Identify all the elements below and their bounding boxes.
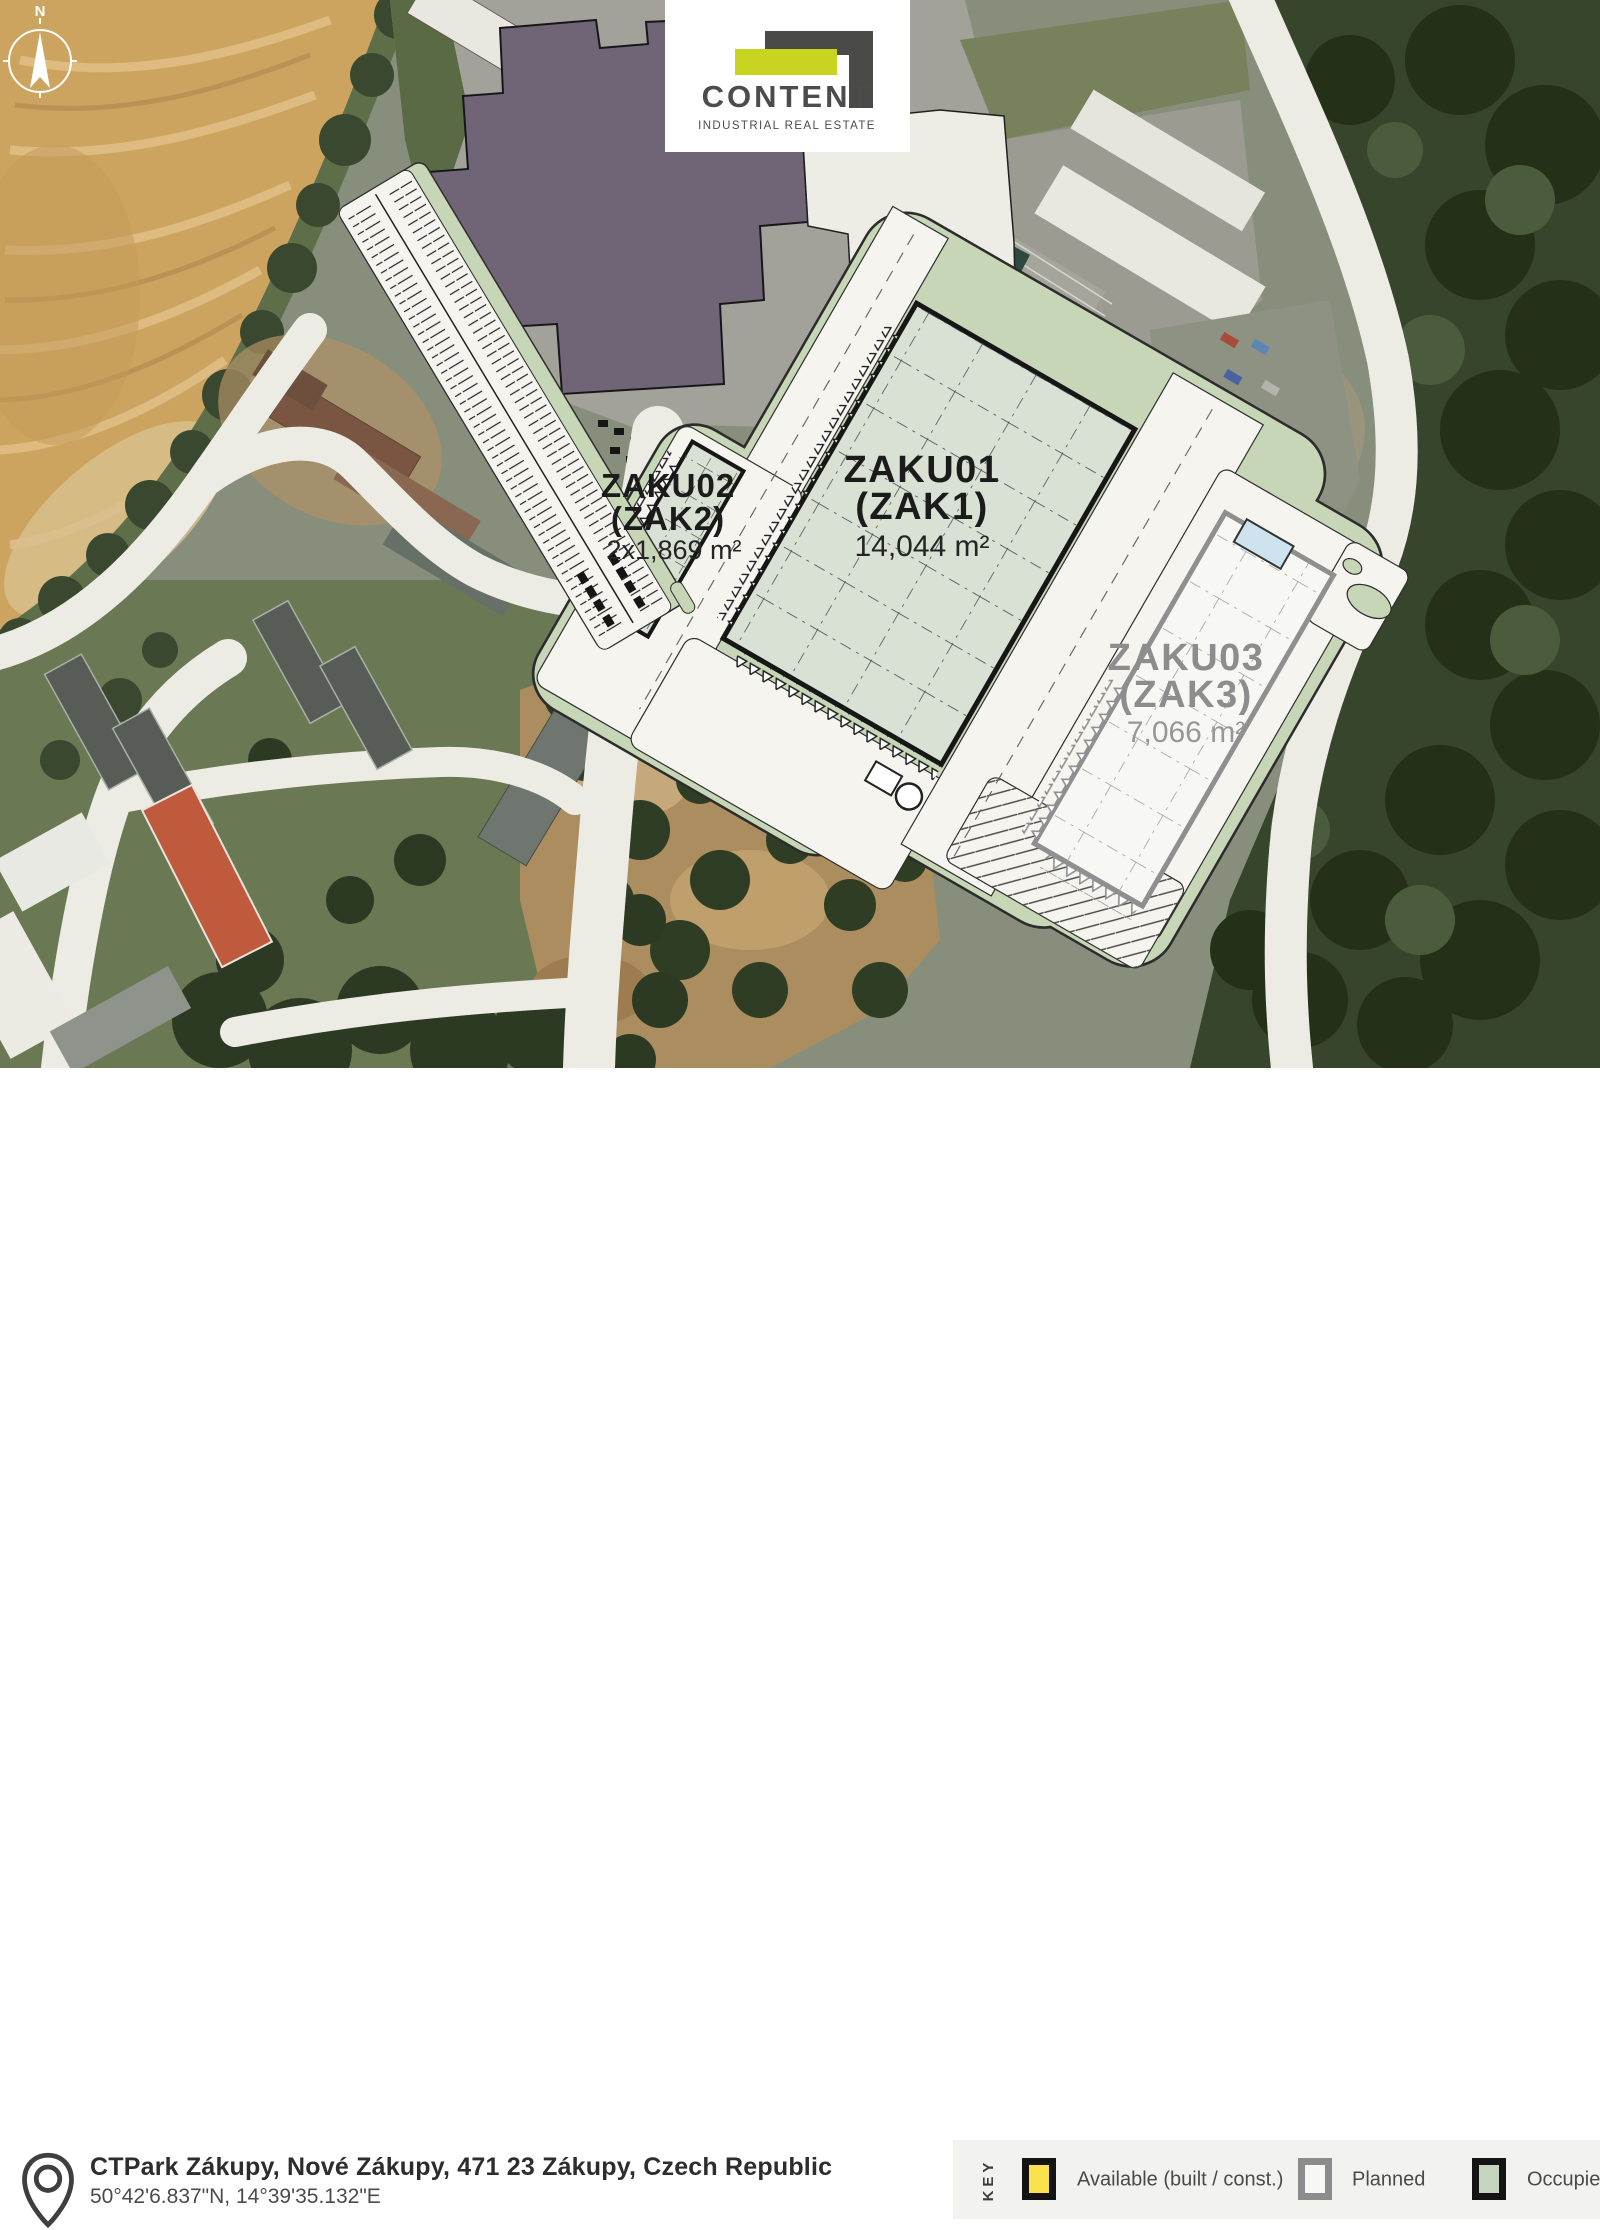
legend-label-planned: Planned (1352, 2168, 1425, 2191)
legend-panel: KEY Available (built / const.) Planned O… (953, 2140, 1600, 2219)
logo-wordmark: CONTENT (702, 79, 873, 114)
zaku02-code-label: ZAKU02 (601, 467, 735, 504)
legend-label-occupied: Occupied (1527, 2168, 1600, 2191)
legend-swatch-occupied (1472, 2158, 1506, 2200)
aerial-site-map: ZAKU01 (ZAK1) 14,044 m² ZAKU02 (ZAK2) 2x… (0, 0, 1600, 1068)
zaku01-alt-label: (ZAK1) (855, 486, 989, 528)
logo-tagline: INDUSTRIAL REAL ESTATE (698, 120, 876, 132)
zaku03-alt-label: (ZAK3) (1119, 674, 1253, 716)
zaku03-code-label: ZAKU03 (1108, 637, 1265, 679)
site-plan-page: ZAKU01 (ZAK1) 14,044 m² ZAKU02 (ZAK2) 2x… (0, 0, 1600, 1200)
zaku02-alt-label: (ZAK2) (611, 500, 725, 537)
logo-mark-accent (735, 49, 837, 75)
legend-swatch-planned (1298, 2158, 1332, 2200)
content-logo: CONTENT INDUSTRIAL REAL ESTATE (665, 0, 910, 152)
zaku01-area-label: 14,044 m² (854, 530, 989, 563)
zaku02-area-label: 2x1,869 m² (606, 535, 741, 565)
legend-swatch-available (1022, 2158, 1056, 2200)
legend-label-available: Available (built / const.) (1077, 2168, 1283, 2191)
legend-title: KEY (980, 2158, 997, 2201)
location-pin-icon (20, 2150, 76, 2230)
park-address: CTPark Zákupy, Nové Zákupy, 471 23 Zákup… (90, 2151, 832, 2183)
compass-north-label: N (35, 3, 46, 20)
zaku01-code-label: ZAKU01 (844, 449, 1001, 491)
zaku03-area-label: 7,066 m² (1127, 716, 1245, 749)
footer-bar: CTPark Zákupy, Nové Zákupy, 471 23 Zákup… (0, 1068, 1600, 1200)
park-coordinates: 50°42'6.837"N, 14°39'35.132"E (90, 2183, 832, 2211)
